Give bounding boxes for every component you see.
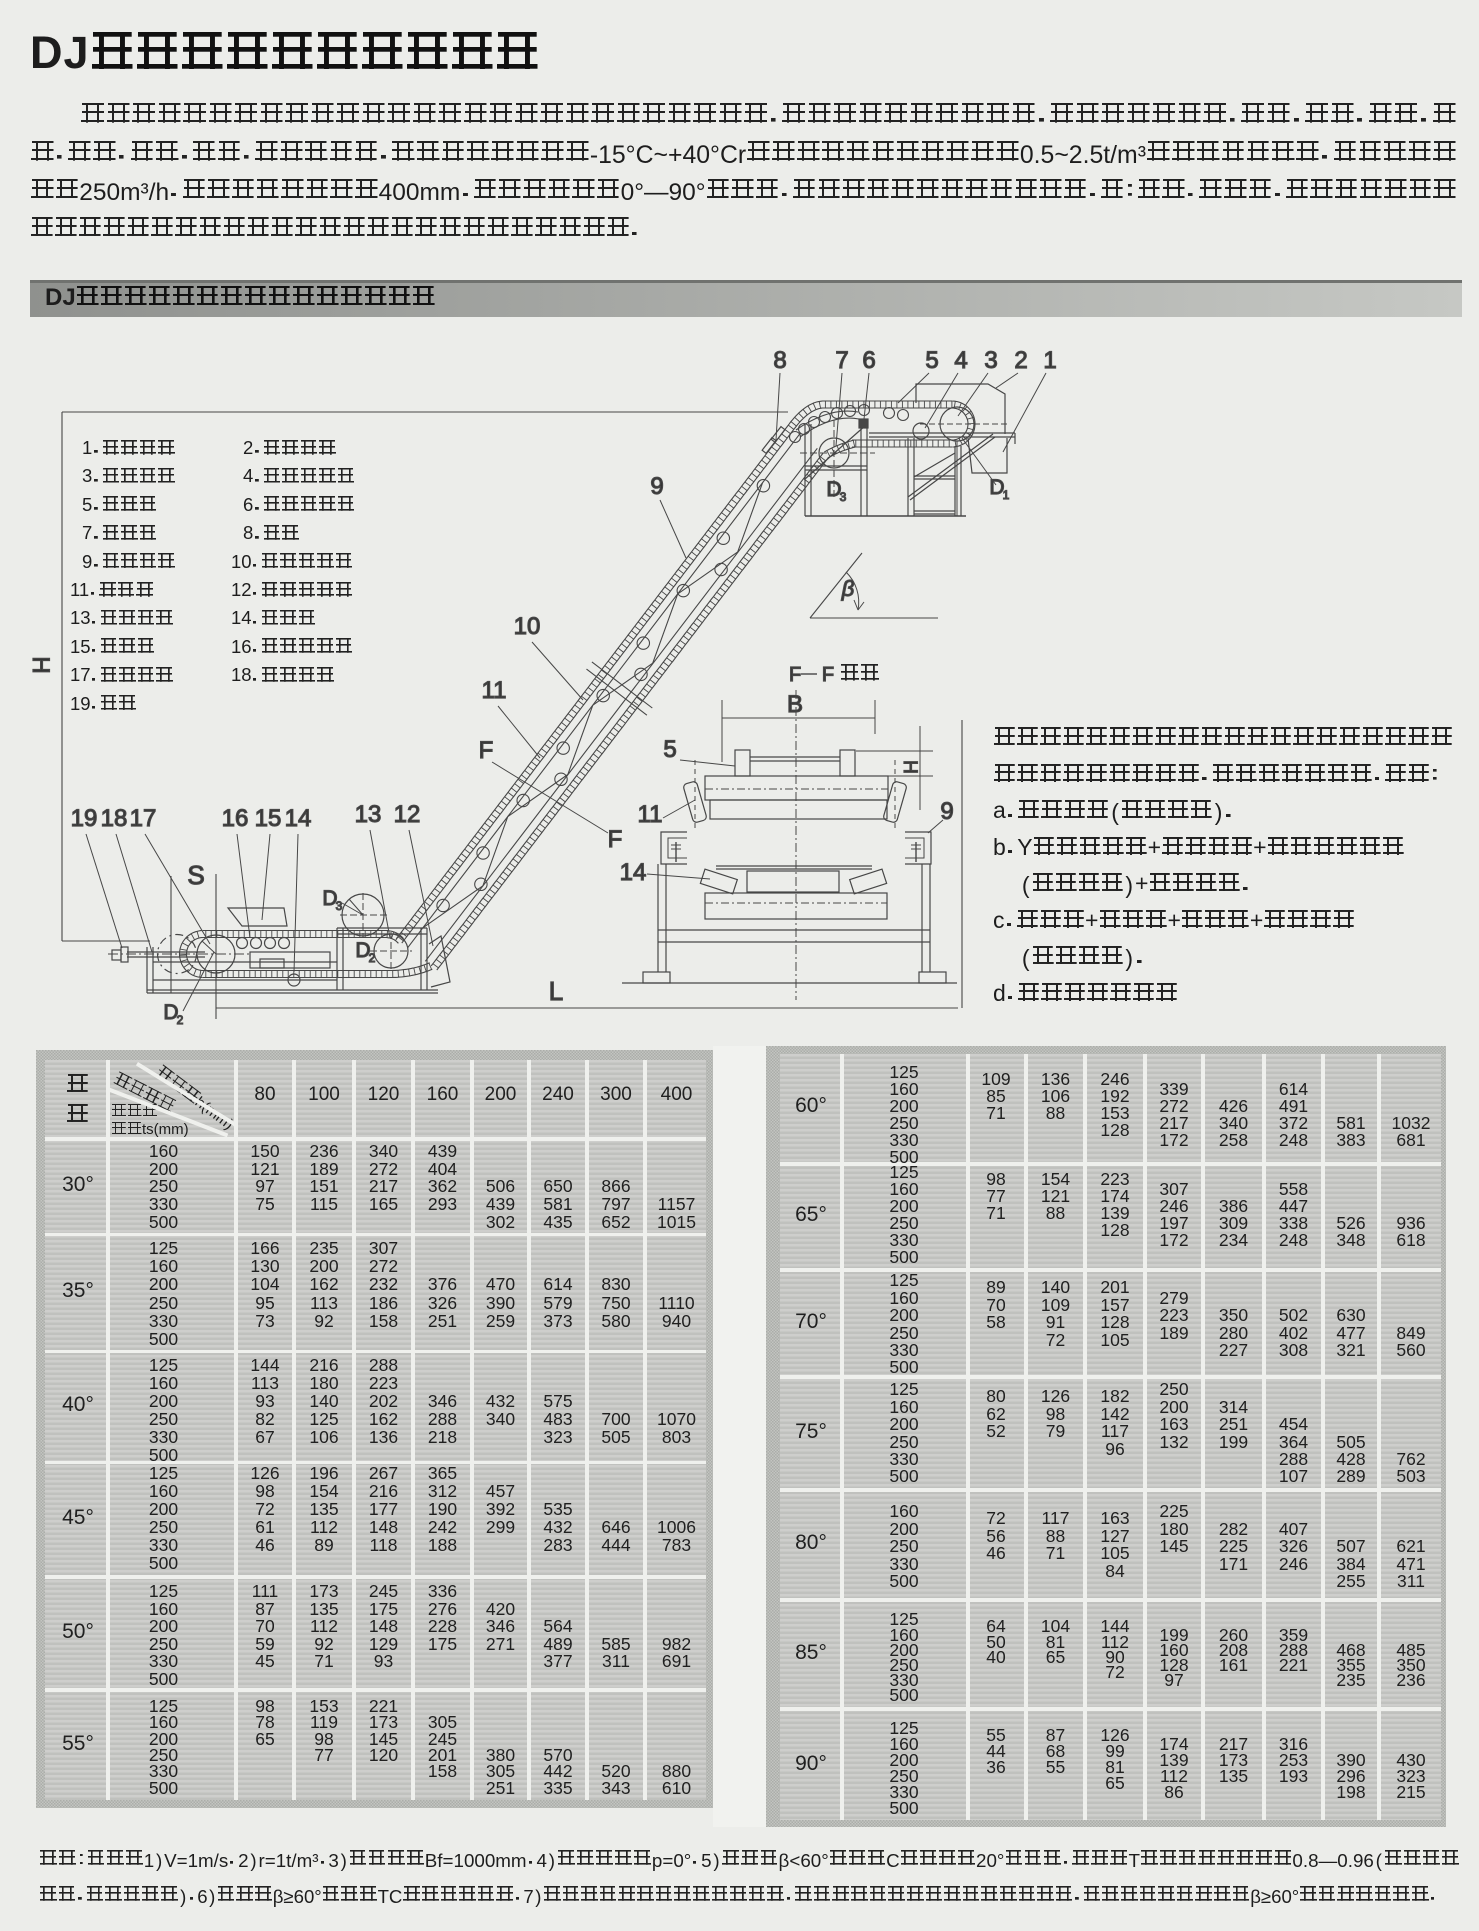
svg-text:8: 8 [773,347,786,374]
svg-text:9: 9 [650,473,663,500]
svg-text:F: F [789,664,801,686]
svg-text:H: H [27,656,54,673]
svg-text:B: B [787,691,803,718]
svg-text:β: β [841,576,855,601]
svg-text:14: 14 [285,805,312,832]
svg-text:1: 1 [1003,488,1010,502]
svg-text:17: 17 [130,805,157,832]
svg-text:F: F [822,664,834,686]
svg-text:L: L [549,976,563,1006]
svg-text:11: 11 [638,801,663,828]
svg-text:S: S [187,860,204,890]
svg-text:13: 13 [355,801,382,828]
svg-text:1: 1 [1043,347,1056,374]
svg-text:F: F [608,826,623,853]
svg-text:15: 15 [255,805,282,832]
svg-text:2: 2 [369,951,376,965]
svg-text:H: H [899,760,920,774]
svg-text:19: 19 [71,805,98,832]
svg-text:5: 5 [925,347,938,374]
svg-text:3: 3 [336,899,343,913]
svg-text:10: 10 [514,613,541,640]
svg-text:3: 3 [984,347,997,374]
svg-text:11: 11 [482,677,507,704]
svg-text:12: 12 [394,801,421,828]
svg-text:18: 18 [101,805,128,832]
svg-text:2: 2 [1014,347,1027,374]
svg-text:F: F [479,737,494,764]
svg-text:14: 14 [620,859,647,886]
svg-text:5: 5 [663,736,676,763]
svg-text:2: 2 [177,1013,184,1027]
svg-text:7: 7 [835,347,848,374]
svg-text:4: 4 [954,347,967,374]
svg-text:6: 6 [862,347,875,374]
svg-text:3: 3 [840,490,847,504]
svg-text:16: 16 [222,805,249,832]
